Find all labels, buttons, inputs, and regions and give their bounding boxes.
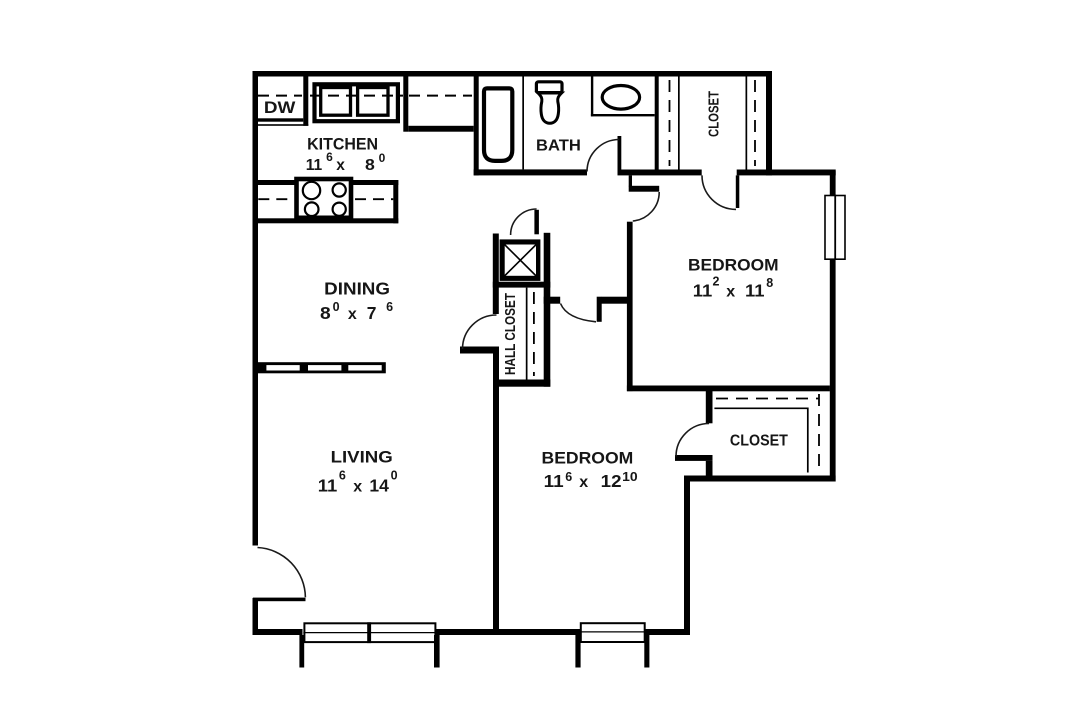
svg-text:CLOSET: CLOSET <box>707 91 723 137</box>
svg-text:11: 11 <box>306 157 323 174</box>
svg-text:6: 6 <box>386 300 393 314</box>
svg-text:CLOSET: CLOSET <box>730 432 788 449</box>
svg-text:DINING: DINING <box>324 278 390 298</box>
svg-text:x: x <box>579 474 588 491</box>
svg-text:BATH: BATH <box>536 138 581 155</box>
svg-text:11: 11 <box>745 280 765 300</box>
svg-text:2: 2 <box>713 275 720 289</box>
svg-text:x: x <box>348 306 357 323</box>
svg-text:DW: DW <box>264 99 296 117</box>
svg-text:12: 12 <box>601 471 622 491</box>
svg-text:x: x <box>336 157 345 174</box>
svg-text:6: 6 <box>339 469 346 483</box>
svg-text:6: 6 <box>565 470 572 484</box>
svg-text:0: 0 <box>333 300 340 314</box>
svg-text:LIVING: LIVING <box>331 447 393 466</box>
svg-text:x: x <box>726 283 735 300</box>
svg-text:10: 10 <box>622 470 638 484</box>
svg-text:0: 0 <box>391 469 398 483</box>
svg-text:BEDROOM: BEDROOM <box>542 450 634 468</box>
svg-text:BEDROOM: BEDROOM <box>688 256 779 274</box>
svg-text:11: 11 <box>693 280 713 300</box>
svg-text:8: 8 <box>320 303 331 323</box>
svg-text:8: 8 <box>365 157 375 174</box>
svg-text:8: 8 <box>766 276 773 290</box>
svg-text:6: 6 <box>326 150 333 164</box>
svg-text:x: x <box>353 479 362 496</box>
svg-text:11: 11 <box>318 476 338 496</box>
svg-text:14: 14 <box>369 476 389 496</box>
svg-text:0: 0 <box>379 151 386 165</box>
svg-text:7: 7 <box>367 303 377 323</box>
svg-text:HALL CLOSET: HALL CLOSET <box>503 293 519 375</box>
svg-text:KITCHEN: KITCHEN <box>307 135 378 154</box>
svg-text:11: 11 <box>544 471 564 491</box>
